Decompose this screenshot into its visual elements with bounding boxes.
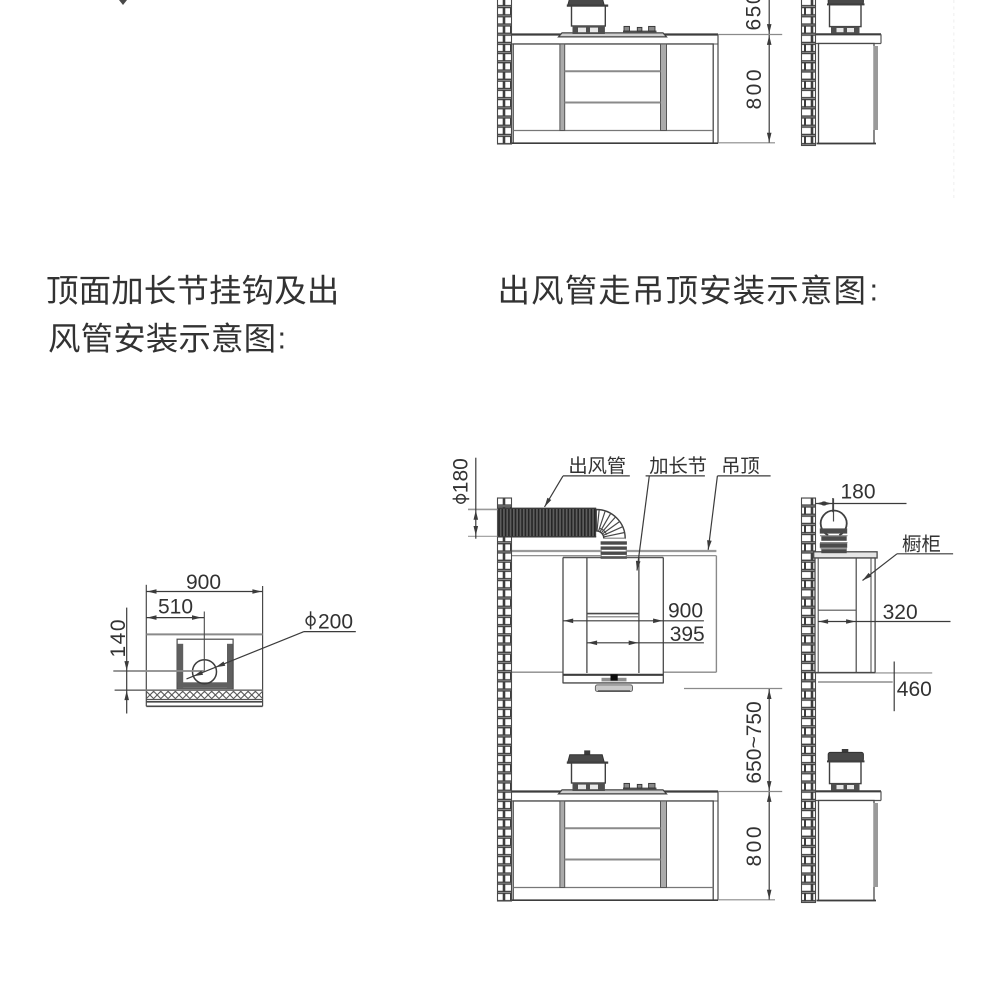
svg-text:180: 180 (450, 458, 473, 493)
svg-text:800: 800 (743, 824, 766, 867)
svg-text:800: 800 (743, 67, 766, 110)
svg-text:140: 140 (107, 618, 130, 658)
svg-text:320: 320 (883, 601, 918, 624)
svg-text:200: 200 (318, 611, 353, 634)
svg-text:460: 460 (897, 678, 932, 701)
svg-text:650~750: 650~750 (743, 701, 766, 783)
svg-text:900: 900 (668, 599, 703, 622)
svg-text:900: 900 (186, 571, 221, 594)
svg-text::: : (870, 273, 879, 308)
svg-text::: : (278, 321, 287, 356)
svg-text:650: 650 (743, 0, 766, 31)
svg-text:180: 180 (841, 481, 876, 504)
svg-text:510: 510 (158, 596, 193, 619)
